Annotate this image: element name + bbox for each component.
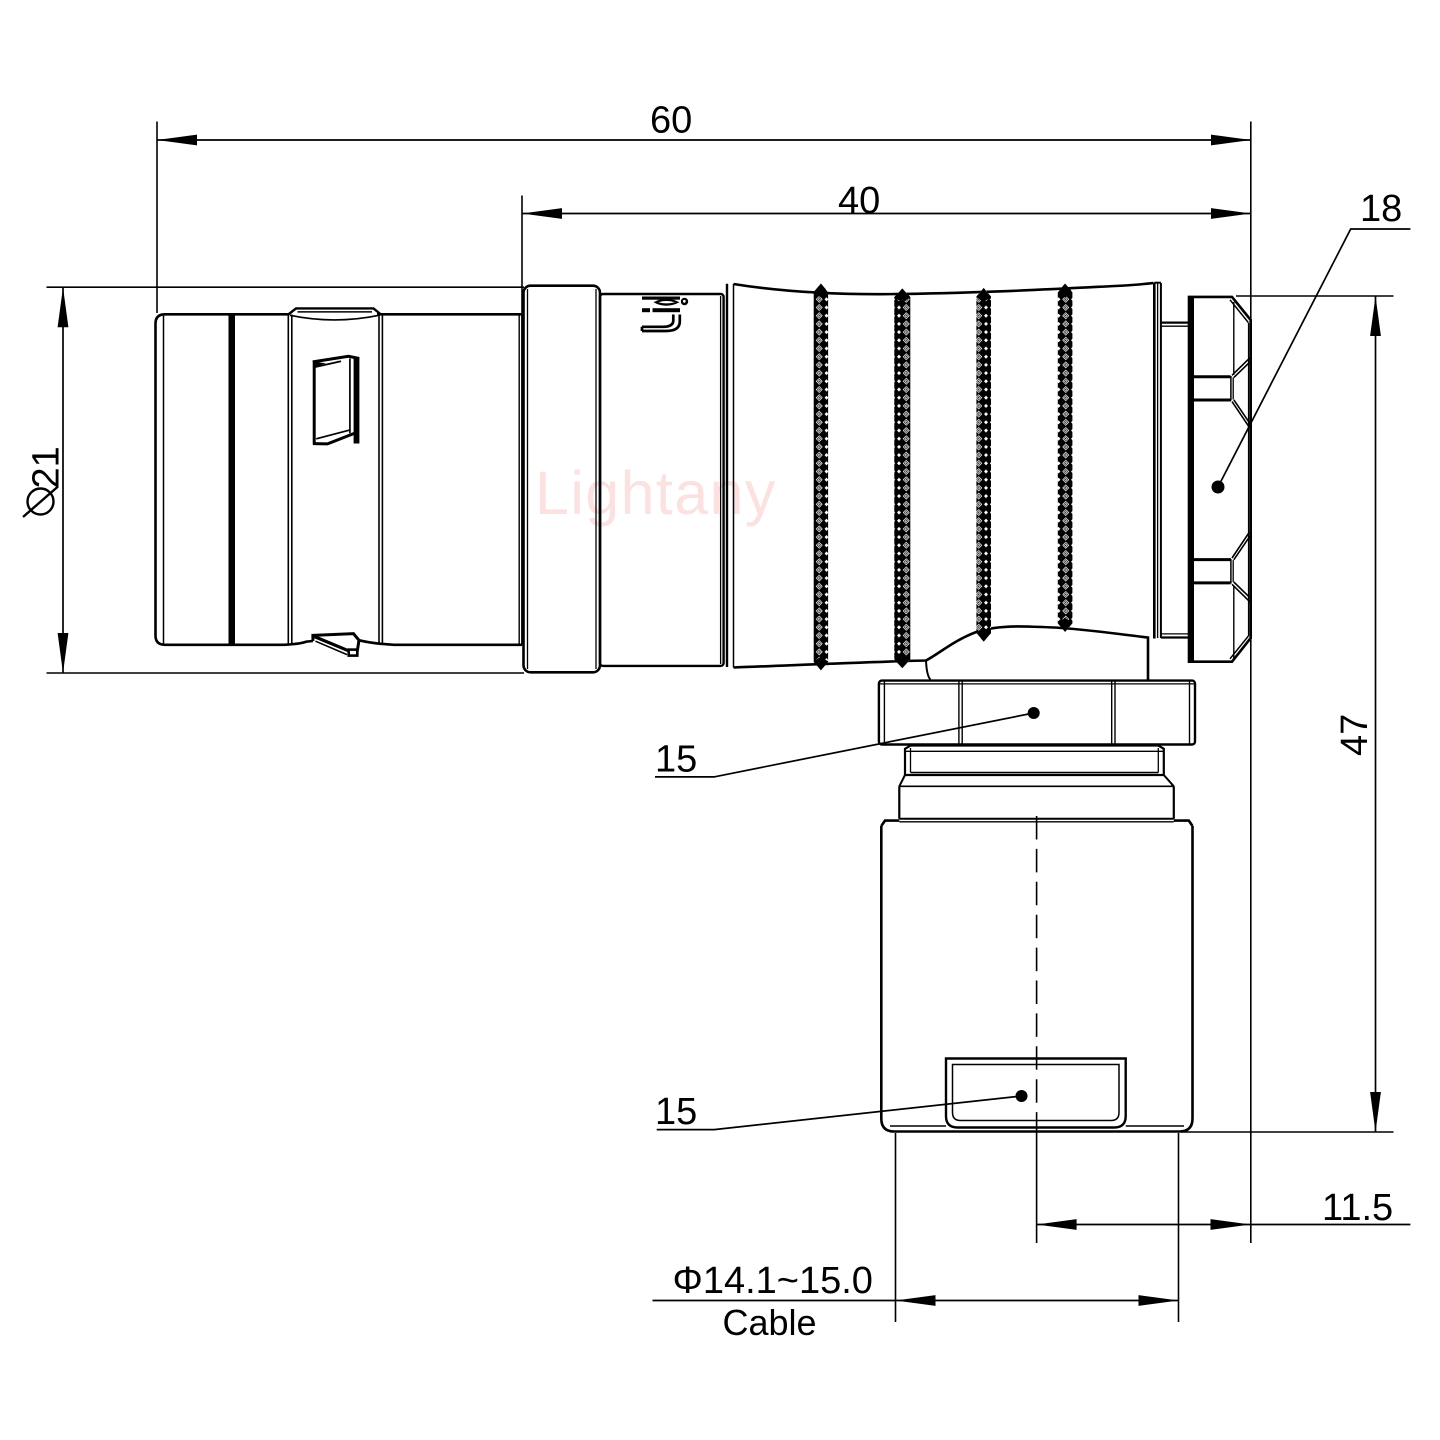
svg-text:11.5: 11.5: [1322, 1187, 1393, 1229]
svg-text:15: 15: [655, 1091, 697, 1133]
svg-text:Φ14.1~15.0: Φ14.1~15.0: [673, 1260, 873, 1302]
svg-text:15: 15: [655, 739, 697, 781]
svg-text:47: 47: [1334, 714, 1376, 756]
svg-text:21: 21: [26, 446, 68, 488]
svg-text:18: 18: [1360, 188, 1402, 230]
svg-text:Cable: Cable: [723, 1302, 817, 1343]
svg-text:40: 40: [838, 180, 880, 222]
svg-text:60: 60: [650, 100, 692, 142]
svg-text:Lightany: Lightany: [535, 459, 777, 527]
